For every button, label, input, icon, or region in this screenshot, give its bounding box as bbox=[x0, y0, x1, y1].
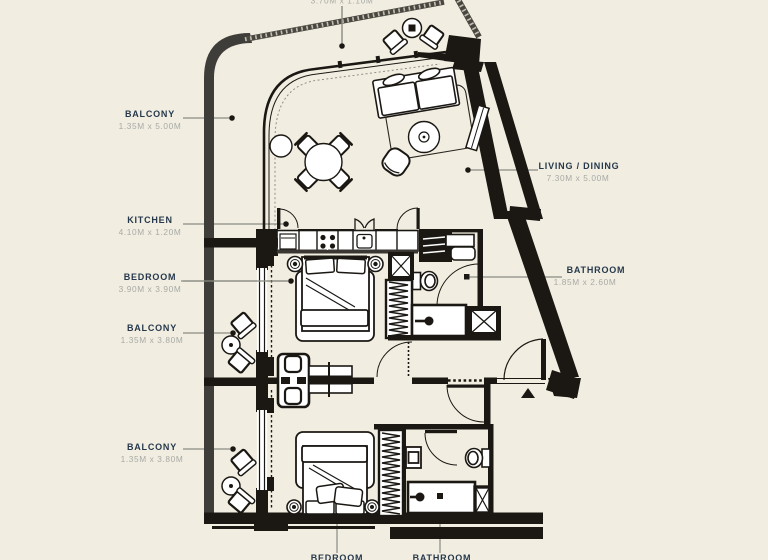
svg-text:BALCONY: BALCONY bbox=[127, 442, 177, 452]
svg-text:BALCONY: BALCONY bbox=[127, 323, 177, 333]
svg-text:BATHROOM: BATHROOM bbox=[567, 265, 626, 275]
svg-text:BALCONY: BALCONY bbox=[125, 109, 175, 119]
svg-text:3.70M x 1.10M: 3.70M x 1.10M bbox=[311, 0, 374, 6]
svg-text:3.90M x 3.90M: 3.90M x 3.90M bbox=[119, 284, 182, 294]
svg-text:1.35M x 5.00M: 1.35M x 5.00M bbox=[119, 121, 182, 131]
svg-text:BEDROOM: BEDROOM bbox=[311, 553, 364, 560]
svg-text:1.35M x 3.80M: 1.35M x 3.80M bbox=[121, 454, 184, 464]
svg-text:LIVING / DINING: LIVING / DINING bbox=[538, 161, 619, 171]
svg-text:BATHROOM: BATHROOM bbox=[413, 553, 472, 560]
svg-text:4.10M x 1.20M: 4.10M x 1.20M bbox=[119, 227, 182, 237]
svg-text:1.85M x 2.60M: 1.85M x 2.60M bbox=[554, 277, 617, 287]
svg-text:KITCHEN: KITCHEN bbox=[127, 215, 173, 225]
svg-text:7.30M x 5.00M: 7.30M x 5.00M bbox=[547, 173, 610, 183]
svg-text:1.35M x 3.80M: 1.35M x 3.80M bbox=[121, 335, 184, 345]
svg-text:BEDROOM: BEDROOM bbox=[124, 272, 177, 282]
